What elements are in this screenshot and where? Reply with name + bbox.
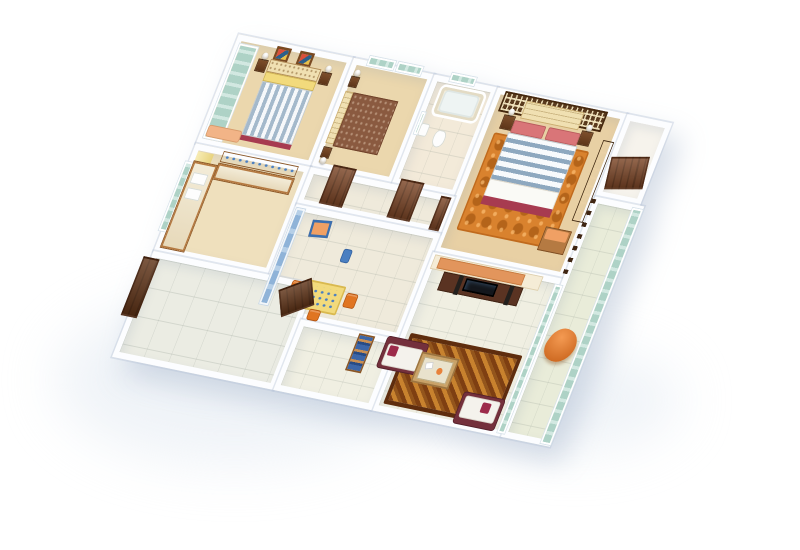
apartment-plan [103, 28, 696, 459]
plan-shadow-wrapper [0, 0, 800, 550]
floorplan-render [0, 0, 800, 550]
entrance-door [604, 157, 650, 189]
paper-on-table [425, 362, 434, 369]
